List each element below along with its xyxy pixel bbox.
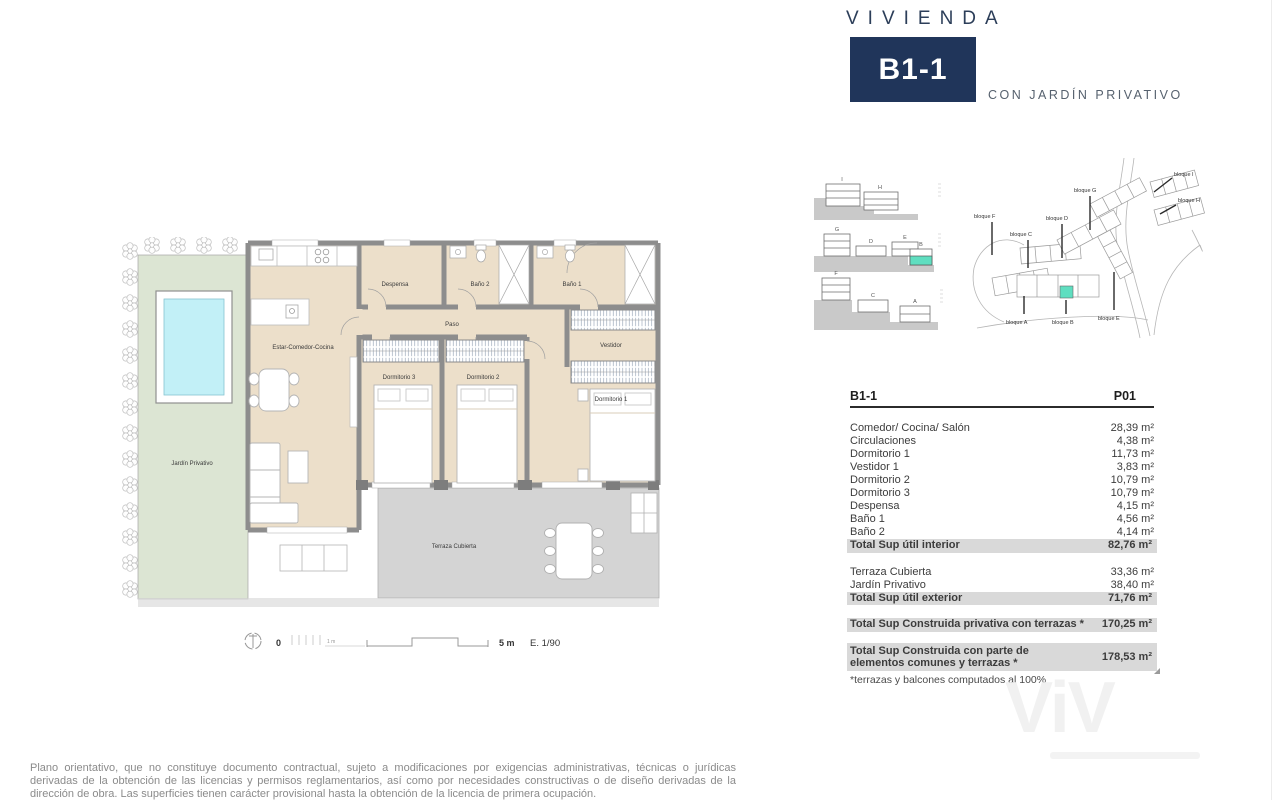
label-bloque-e: bloque E — [1098, 316, 1120, 322]
label-bloque-c: bloque C — [1010, 232, 1032, 238]
svg-text:I: I — [841, 177, 843, 183]
label-vestidor: Vestidor — [600, 343, 622, 349]
bed-dorm2 — [457, 385, 517, 483]
label-bloque-f: bloque F — [974, 214, 996, 220]
table-row: Dormitorio 111,73 m² — [850, 448, 1154, 461]
site-map: bloque F bloque C bloque D bloque G bloq… — [962, 150, 1212, 345]
table-row: Dormitorio 310,79 m² — [850, 487, 1154, 500]
svg-text:E: E — [903, 235, 907, 241]
unit-code: B1-1 — [878, 53, 947, 87]
svg-text:D: D — [869, 239, 873, 245]
table-row: Vestidor 13,83 m² — [850, 461, 1154, 474]
highlighted-unit — [1060, 286, 1073, 298]
label-jardin: Jardín Privativo — [171, 461, 213, 467]
highlighted-block-b — [910, 256, 932, 265]
kitchen-island — [251, 299, 309, 325]
terrace — [378, 488, 659, 598]
area-table-header: B1-1 P01 — [850, 389, 1154, 408]
table-row: Dormitorio 210,79 m² — [850, 474, 1154, 487]
svg-text:G: G — [835, 227, 839, 233]
scale-zero: 0 — [276, 638, 281, 648]
label-dorm2: Dormitorio 2 — [467, 375, 500, 381]
garden-path — [138, 598, 659, 607]
bed-dorm3 — [374, 385, 432, 483]
scale-bar: 0 1 m 5 m E. 1/90 — [245, 633, 560, 649]
legal-disclaimer: Plano orientativo, que no constituye doc… — [30, 762, 736, 800]
table-row: Terraza Cubierta33,36 m² — [850, 566, 1154, 579]
svg-text:H: H — [878, 185, 882, 191]
site-labels: bloque F bloque C bloque D bloque G bloq… — [974, 172, 1200, 326]
table-row: Baño 24,14 m² — [850, 526, 1154, 539]
label-bloque-d: bloque D — [1046, 216, 1068, 222]
kitchen-counter — [251, 246, 357, 266]
svg-text:C: C — [871, 293, 875, 299]
table-row: Baño 14,56 m² — [850, 513, 1154, 526]
table-footnote: *terrazas y balcones computados al 100% — [850, 674, 1154, 686]
terrace-planters — [631, 493, 657, 533]
svg-text:B: B — [919, 242, 923, 248]
scale-one-m: 1 m — [327, 639, 335, 645]
total-interior-row: Total Sup útil interior82,76 m² — [847, 539, 1157, 553]
area-table: B1-1 P01 Comedor/ Cocina/ Salón28,39 m² … — [850, 389, 1154, 686]
page-subtitle: CON JARDÍN PRIVATIVO — [988, 88, 1183, 102]
label-bloque-g: bloque G — [1074, 188, 1096, 194]
table-row: Circulaciones4,38 m² — [850, 435, 1154, 448]
label-bano2: Baño 2 — [470, 282, 490, 288]
table-row: Jardín Privativo38,40 m² — [850, 579, 1154, 592]
terrace-table — [545, 523, 604, 579]
scale-ruler — [367, 638, 488, 647]
label-bloque-b: bloque B — [1052, 320, 1074, 326]
label-bloque-i: bloque I — [1174, 172, 1194, 178]
svg-text:A: A — [913, 299, 917, 305]
tree-icon — [123, 243, 138, 260]
label-dorm3: Dormitorio 3 — [383, 375, 416, 381]
label-living: Estar-Comedor-Cocina — [272, 345, 334, 351]
unit-badge: B1-1 — [850, 37, 976, 102]
pool — [156, 291, 232, 403]
label-dorm1: Dormitorio 1 — [595, 397, 628, 403]
page-kicker: VIVIENDA — [846, 8, 1007, 30]
table-row: Comedor/ Cocina/ Salón28,39 m² — [850, 422, 1154, 435]
total-privativa-row: Total Sup Construida privativa con terra… — [847, 618, 1157, 632]
north-compass-icon — [245, 633, 261, 649]
patio-bench — [280, 545, 347, 571]
page-edge-line — [1271, 0, 1272, 800]
table-row: Despensa4,15 m² — [850, 500, 1154, 513]
label-bano1: Baño 1 — [562, 282, 582, 288]
watermark-tagline — [1050, 752, 1200, 759]
tv-unit — [350, 357, 357, 427]
scale-ticks — [292, 635, 320, 645]
brochure-page: VIVIENDA B1-1 CON JARDÍN PRIVATIVO — [0, 0, 1280, 800]
label-bloque-a: bloque A — [1006, 320, 1028, 326]
label-paso: Paso — [445, 322, 459, 328]
scale-ratio: E. 1/90 — [530, 638, 560, 649]
sections-diagram: I H G D E B F C A — [812, 172, 952, 332]
label-terraza: Terraza Cubierta — [432, 544, 477, 550]
table-unit: B1-1 — [850, 389, 877, 403]
label-bloque-h: bloque H — [1178, 198, 1200, 204]
total-exterior-row: Total Sup útil exterior71,76 m² — [847, 592, 1157, 606]
scale-five-m: 5 m — [499, 638, 515, 648]
floor-plan: Estar-Comedor-Cocina Despensa Baño 2 Bañ… — [122, 237, 662, 660]
label-despensa: Despensa — [381, 282, 409, 288]
table-floor: P01 — [1114, 389, 1154, 403]
total-comunes-row: Total Sup Construida con parte de elemen… — [847, 643, 1157, 671]
